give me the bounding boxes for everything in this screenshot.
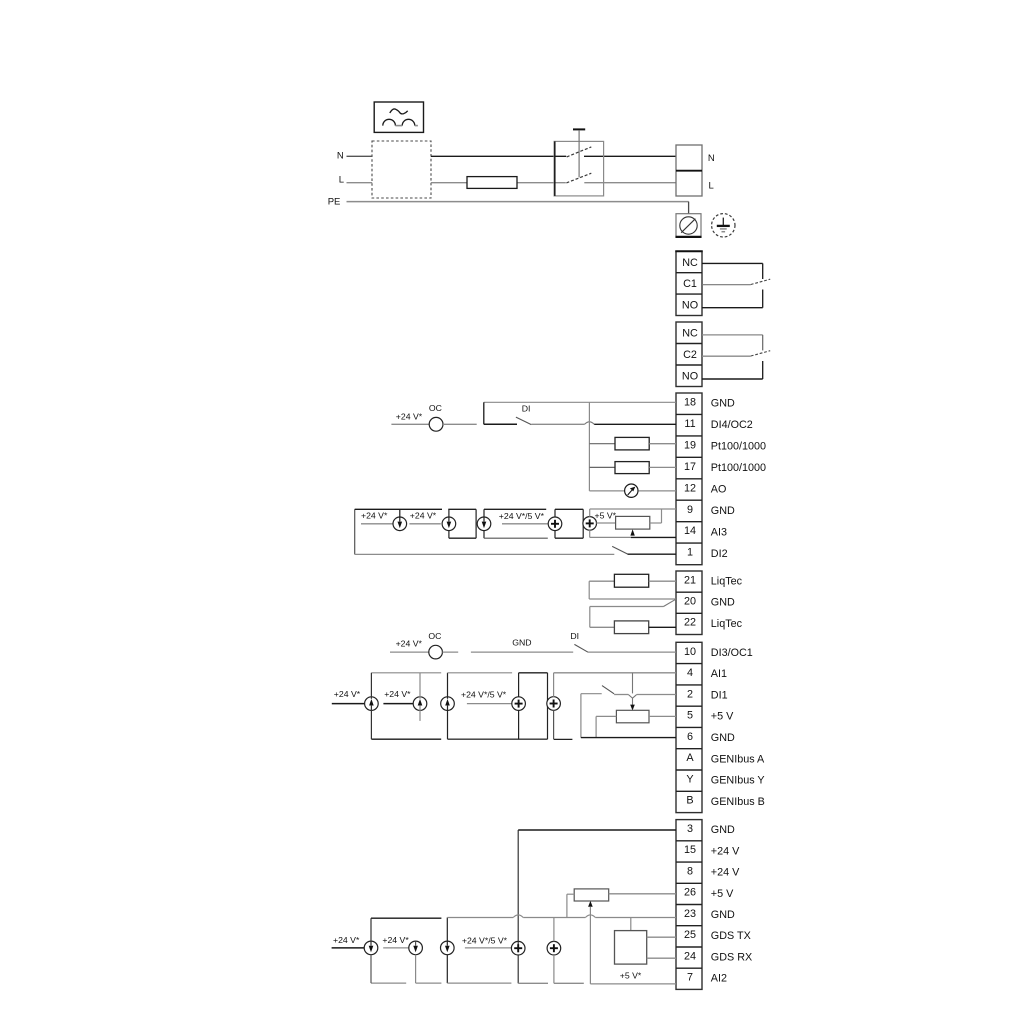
svg-text:23: 23 <box>684 908 696 920</box>
svg-text:OC: OC <box>429 403 442 413</box>
svg-text:DI2: DI2 <box>711 548 728 560</box>
svg-text:GND: GND <box>711 732 735 744</box>
svg-text:GENIbus A: GENIbus A <box>711 753 765 765</box>
svg-text:DI: DI <box>570 631 579 641</box>
svg-text:2: 2 <box>687 688 693 700</box>
svg-text:20: 20 <box>684 596 696 608</box>
svg-text:+5 V*: +5 V* <box>620 970 642 980</box>
svg-text:AO: AO <box>711 483 727 495</box>
svg-text:C2: C2 <box>683 349 697 361</box>
svg-text:GND: GND <box>711 824 735 836</box>
svg-text:22: 22 <box>684 617 696 629</box>
svg-text:12: 12 <box>684 482 696 494</box>
svg-text:15: 15 <box>684 844 696 856</box>
svg-text:OC: OC <box>428 631 441 641</box>
svg-text:+24 V*: +24 V* <box>396 411 423 421</box>
svg-text:AI2: AI2 <box>711 973 727 985</box>
svg-text:DI3/OC1: DI3/OC1 <box>711 647 753 659</box>
svg-text:B: B <box>686 795 693 807</box>
svg-text:GENIbus Y: GENIbus Y <box>711 775 765 787</box>
svg-text:NC: NC <box>682 328 698 340</box>
svg-text:GDS TX: GDS TX <box>711 930 751 942</box>
svg-text:+24 V*: +24 V* <box>382 935 409 945</box>
svg-text:N: N <box>708 153 715 164</box>
svg-text:A: A <box>686 752 694 764</box>
svg-text:+24 V*: +24 V* <box>410 510 437 520</box>
svg-text:26: 26 <box>684 887 696 899</box>
svg-text:GND: GND <box>512 637 531 647</box>
svg-text:DI4/OC2: DI4/OC2 <box>711 419 753 431</box>
svg-text:+24 V*/5 V*: +24 V*/5 V* <box>462 935 508 945</box>
svg-text:1: 1 <box>687 547 693 559</box>
svg-text:+24 V: +24 V <box>711 867 740 879</box>
svg-text:17: 17 <box>684 461 696 473</box>
svg-text:GND: GND <box>711 909 735 921</box>
svg-text:LiqTec: LiqTec <box>711 576 743 588</box>
svg-text:11: 11 <box>684 418 695 430</box>
svg-text:L: L <box>339 175 344 186</box>
svg-text:PE: PE <box>328 196 341 207</box>
svg-text:18: 18 <box>684 397 696 409</box>
svg-text:Pt100/1000: Pt100/1000 <box>711 462 766 474</box>
svg-text:+5 V: +5 V <box>711 888 734 900</box>
svg-text:4: 4 <box>687 667 693 679</box>
svg-text:7: 7 <box>687 972 693 984</box>
svg-text:GENIbus B: GENIbus B <box>711 796 765 808</box>
svg-text:24: 24 <box>684 950 696 962</box>
svg-text:+24 V*/5 V*: +24 V*/5 V* <box>499 511 545 521</box>
svg-text:19: 19 <box>684 439 696 451</box>
svg-text:AI1: AI1 <box>711 668 727 680</box>
svg-text:5: 5 <box>687 710 693 722</box>
svg-text:LiqTec: LiqTec <box>711 618 743 630</box>
svg-text:+24 V*: +24 V* <box>334 689 361 699</box>
svg-text:+24 V*: +24 V* <box>384 689 411 699</box>
svg-text:+24 V*: +24 V* <box>361 510 388 520</box>
svg-text:NC: NC <box>682 257 698 269</box>
svg-text:3: 3 <box>687 823 693 835</box>
svg-text:Y: Y <box>686 773 693 785</box>
svg-text:NO: NO <box>682 371 698 383</box>
svg-text:25: 25 <box>684 929 696 941</box>
svg-text:Pt100/1000: Pt100/1000 <box>711 441 766 453</box>
svg-text:+24 V*: +24 V* <box>333 935 360 945</box>
svg-text:GND: GND <box>711 398 735 410</box>
svg-text:DI1: DI1 <box>711 690 728 702</box>
svg-text:10: 10 <box>684 646 696 658</box>
svg-text:C1: C1 <box>683 278 697 290</box>
svg-text:21: 21 <box>684 574 696 586</box>
svg-text:N: N <box>337 151 344 162</box>
svg-text:AI3: AI3 <box>711 526 727 538</box>
svg-text:14: 14 <box>684 525 696 537</box>
svg-text:8: 8 <box>687 866 693 878</box>
svg-text:9: 9 <box>687 504 693 516</box>
svg-text:+24 V*: +24 V* <box>396 638 423 648</box>
svg-text:+5 V*: +5 V* <box>595 510 617 520</box>
svg-text:DI: DI <box>522 404 531 414</box>
svg-text:6: 6 <box>687 731 693 743</box>
svg-text:GND: GND <box>711 597 735 609</box>
svg-text:NO: NO <box>682 300 698 312</box>
svg-text:GND: GND <box>711 505 735 517</box>
svg-text:+5 V: +5 V <box>711 711 734 723</box>
svg-text:L: L <box>709 181 714 192</box>
svg-text:+24 V*/5 V*: +24 V*/5 V* <box>461 689 507 699</box>
svg-text:GDS RX: GDS RX <box>711 952 752 964</box>
svg-text:+24 V: +24 V <box>711 845 740 857</box>
